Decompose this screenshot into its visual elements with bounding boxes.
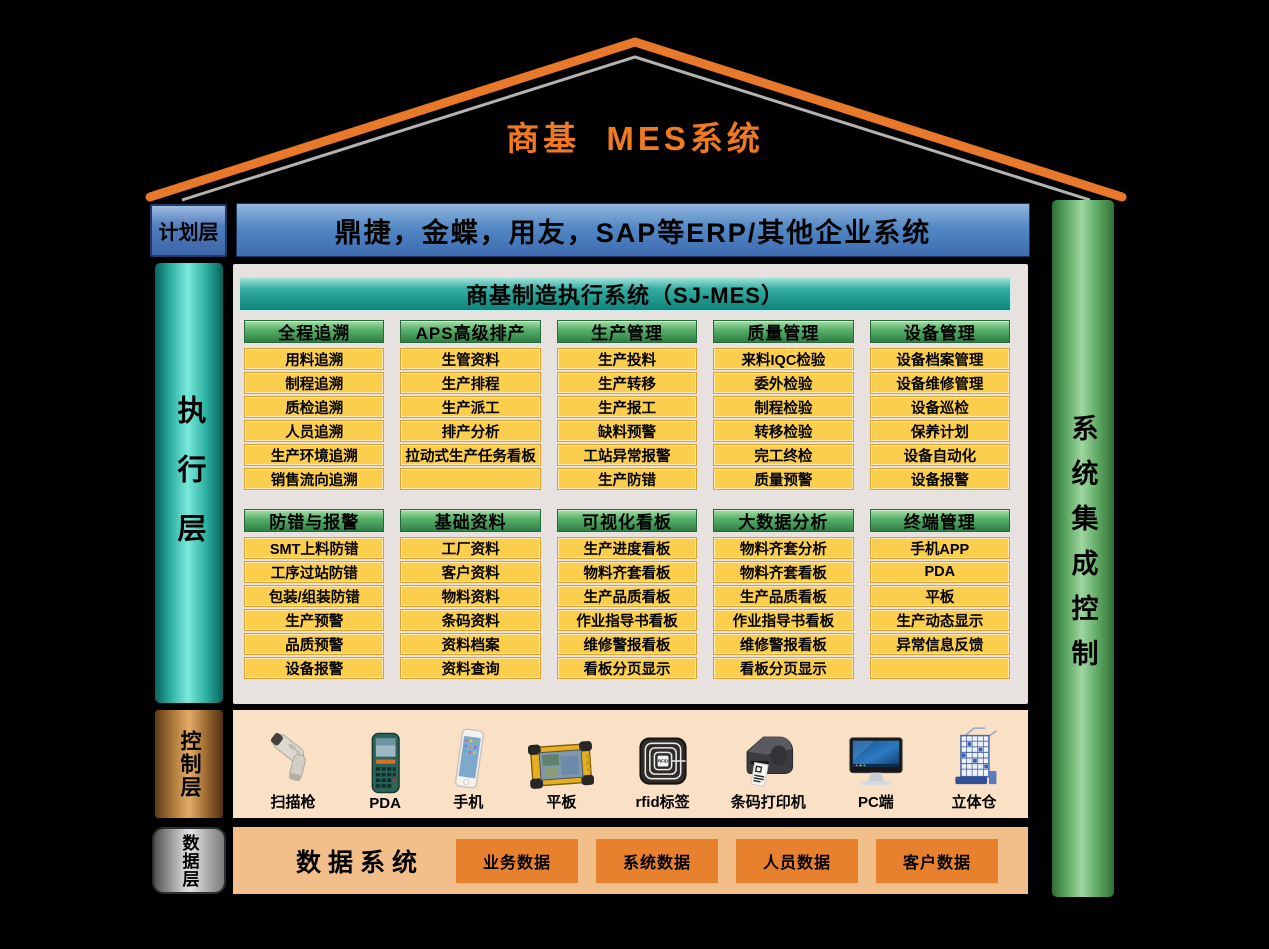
- module-cell: 销售流向追溯: [244, 468, 384, 490]
- layer-label-planning: 计划层: [150, 204, 227, 257]
- module-cell: 质检追溯: [244, 396, 384, 418]
- module-cell: 异常信息反馈: [870, 633, 1010, 655]
- module-column: 质量管理来料IQC检验委外检验制程检验转移检验完工终检质量预警: [713, 320, 853, 492]
- module-cell: 拉动式生产任务看板: [400, 444, 540, 466]
- module-header: 基础资料: [400, 509, 540, 532]
- module-column: 基础资料工厂资料客户资料物料资料条码资料资料档案资料查询: [400, 509, 540, 681]
- module-cell: 缺料预警: [557, 420, 697, 442]
- module-cell: 物料齐套分析: [713, 537, 853, 559]
- module-cell: 维修警报看板: [713, 633, 853, 655]
- module-cell: 看板分页显示: [713, 657, 853, 679]
- module-cell: 生产排程: [400, 372, 540, 394]
- device-label: 扫描枪: [270, 791, 315, 812]
- svg-text:RFID: RFID: [658, 758, 668, 763]
- device-rugged-tablet: 平板: [528, 724, 594, 812]
- integration-pillar: 系统集成控制: [1052, 200, 1114, 897]
- device-label: rfid标签: [635, 791, 689, 812]
- module-cell: 工厂资料: [400, 537, 540, 559]
- module-header: 防错与报警: [244, 509, 384, 532]
- module-cell: 转移检验: [713, 420, 853, 442]
- device-label: PDA: [369, 795, 401, 812]
- module-column: 终端管理手机APPPDA平板生产动态显示异常信息反馈: [870, 509, 1010, 681]
- data-box: 客户数据: [876, 839, 998, 883]
- barcode-scanner-icon: [263, 724, 323, 790]
- device-smartphone: 手机: [447, 724, 489, 812]
- module-cell: 生产品质看板: [557, 585, 697, 607]
- data-box: 人员数据: [736, 839, 858, 883]
- device-rfid-tag: RFIDrfid标签: [634, 724, 692, 812]
- module-cell: 人员追溯: [244, 420, 384, 442]
- module-cell: 品质预警: [244, 633, 384, 655]
- module-row-top: 全程追溯用料追溯制程追溯质检追溯人员追溯生产环境追溯销售流向追溯APS高级排产生…: [244, 320, 1010, 492]
- device-pda: PDA: [362, 728, 408, 812]
- module-cell: 用料追溯: [244, 348, 384, 370]
- automated-warehouse-icon: [946, 724, 1002, 790]
- module-row-bottom: 防错与报警SMT上料防错工序过站防错包装/组装防错生产预警品质预警设备报警基础资…: [244, 509, 1010, 681]
- device-label: 条码打印机: [731, 791, 806, 812]
- module-cell: 设备自动化: [870, 444, 1010, 466]
- module-column: 可视化看板生产进度看板物料齐套看板生产品质看板作业指导书看板维修警报看板看板分页…: [557, 509, 697, 681]
- module-cell: 生产环境追溯: [244, 444, 384, 466]
- layer-pillar-data: 数据层: [152, 827, 226, 894]
- module-cell: 生产投料: [557, 348, 697, 370]
- module-column: 大数据分析物料齐套分析物料齐套看板生产品质看板作业指导书看板维修警报看板看板分页…: [713, 509, 853, 681]
- module-cell: 物料齐套看板: [557, 561, 697, 583]
- module-cell: 平板: [870, 585, 1010, 607]
- module-cell: 生产防错: [557, 468, 697, 490]
- module-cell: 物料资料: [400, 585, 540, 607]
- module-cell: 客户资料: [400, 561, 540, 583]
- module-cell: 完工终检: [713, 444, 853, 466]
- module-cell: 工站异常报警: [557, 444, 697, 466]
- module-cell: 生产动态显示: [870, 609, 1010, 631]
- module-header: 终端管理: [870, 509, 1010, 532]
- module-cell: 生产品质看板: [713, 585, 853, 607]
- module-cell: 生产进度看板: [557, 537, 697, 559]
- layer-pillar-execution: 执行层: [155, 263, 223, 703]
- module-cell: 保养计划: [870, 420, 1010, 442]
- device-label-printer: 条码打印机: [731, 724, 806, 812]
- device-label: 平板: [546, 791, 576, 812]
- module-cell: 质量预警: [713, 468, 853, 490]
- device-automated-warehouse: 立体仓: [946, 724, 1002, 812]
- data-system-title: 数据系统: [296, 843, 424, 879]
- module-cell: 作业指导书看板: [557, 609, 697, 631]
- erp-systems-bar: 鼎捷，金蝶，用友，SAP等ERP/其他企业系统: [236, 203, 1030, 257]
- module-cell: 生产预警: [244, 609, 384, 631]
- sj-mes-banner: 商基制造执行系统（SJ-MES）: [239, 277, 1011, 311]
- execution-panel: 商基制造执行系统（SJ-MES） 全程追溯用料追溯制程追溯质检追溯人员追溯生产环…: [233, 264, 1028, 704]
- module-cell: PDA: [870, 561, 1010, 583]
- module-cell: 委外检验: [713, 372, 853, 394]
- module-cell-empty: [870, 657, 1010, 679]
- module-header: 质量管理: [713, 320, 853, 343]
- device-label: PC端: [858, 791, 894, 812]
- data-layer-panel: 数据系统 业务数据系统数据人员数据客户数据: [233, 827, 1028, 894]
- module-cell: 作业指导书看板: [713, 609, 853, 631]
- integration-pillar-label: 系统集成控制: [1064, 414, 1103, 684]
- rugged-tablet-icon: [528, 724, 594, 790]
- execution-layer-label: 执行层: [168, 395, 210, 572]
- data-layer-label: 数据层: [177, 834, 202, 888]
- module-cell: 制程追溯: [244, 372, 384, 394]
- control-layer-label: 控制层: [174, 730, 204, 799]
- module-cell: 工序过站防错: [244, 561, 384, 583]
- module-cell: 设备档案管理: [870, 348, 1010, 370]
- roof-outline-icon: [0, 0, 1269, 220]
- data-box: 业务数据: [456, 839, 578, 883]
- module-cell: 维修警报看板: [557, 633, 697, 655]
- module-column: 防错与报警SMT上料防错工序过站防错包装/组装防错生产预警品质预警设备报警: [244, 509, 384, 681]
- module-cell: 设备巡检: [870, 396, 1010, 418]
- device-desktop-pc: PC端: [845, 724, 907, 812]
- mes-architecture-diagram: 商基 MES系统 计划层 鼎捷，金蝶，用友，SAP等ERP/其他企业系统 执行层…: [0, 0, 1269, 949]
- control-layer-panel: 扫描枪PDA手机平板RFIDrfid标签条码打印机PC端立体仓: [233, 710, 1028, 818]
- desktop-pc-icon: [845, 724, 907, 790]
- pda-icon: [362, 728, 408, 794]
- module-column: 设备管理设备档案管理设备维修管理设备巡检保养计划设备自动化设备报警: [870, 320, 1010, 492]
- module-header: 设备管理: [870, 320, 1010, 343]
- module-cell: 排产分析: [400, 420, 540, 442]
- label-printer-icon: [736, 724, 800, 790]
- smartphone-icon: [447, 724, 489, 790]
- module-cell: 物料齐套看板: [713, 561, 853, 583]
- module-column: 生产管理生产投料生产转移生产报工缺料预警工站异常报警生产防错: [557, 320, 697, 492]
- device-label: 手机: [453, 791, 483, 812]
- module-header: 大数据分析: [713, 509, 853, 532]
- module-header: 可视化看板: [557, 509, 697, 532]
- module-cell: 资料档案: [400, 633, 540, 655]
- device-label: 立体仓: [951, 791, 996, 812]
- module-cell: 看板分页显示: [557, 657, 697, 679]
- module-cell: 资料查询: [400, 657, 540, 679]
- module-cell: 设备报警: [244, 657, 384, 679]
- module-cell-empty: [400, 468, 540, 490]
- rfid-tag-icon: RFID: [634, 724, 692, 790]
- module-column: 全程追溯用料追溯制程追溯质检追溯人员追溯生产环境追溯销售流向追溯: [244, 320, 384, 492]
- layer-pillar-control: 控制层: [155, 710, 223, 818]
- data-box-group: 业务数据系统数据人员数据客户数据: [456, 839, 998, 883]
- module-cell: 生产转移: [557, 372, 697, 394]
- page-title: 商基 MES系统: [506, 112, 764, 160]
- data-box: 系统数据: [596, 839, 718, 883]
- module-cell: 包装/组装防错: [244, 585, 384, 607]
- module-cell: SMT上料防错: [244, 537, 384, 559]
- module-column: APS高级排产生管资料生产排程生产派工排产分析拉动式生产任务看板: [400, 320, 540, 492]
- module-cell: 生管资料: [400, 348, 540, 370]
- module-cell: 来料IQC检验: [713, 348, 853, 370]
- module-header: APS高级排产: [400, 320, 540, 343]
- module-cell: 生产派工: [400, 396, 540, 418]
- module-cell: 制程检验: [713, 396, 853, 418]
- module-header: 生产管理: [557, 320, 697, 343]
- module-cell: 设备报警: [870, 468, 1010, 490]
- device-barcode-scanner: 扫描枪: [263, 724, 323, 812]
- module-cell: 生产报工: [557, 396, 697, 418]
- module-cell: 条码资料: [400, 609, 540, 631]
- module-header: 全程追溯: [244, 320, 384, 343]
- module-cell: 手机APP: [870, 537, 1010, 559]
- module-cell: 设备维修管理: [870, 372, 1010, 394]
